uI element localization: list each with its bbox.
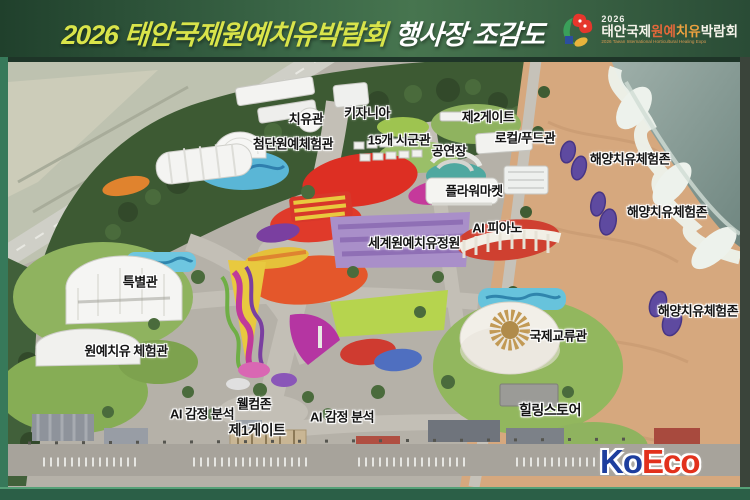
label-gate-1: 제1게이트 bbox=[229, 420, 286, 440]
label-performance-stage: 공연장 bbox=[432, 141, 466, 160]
label-local-food-hall: 로컬/푸드관 bbox=[495, 128, 555, 147]
label-healing-store: 힐링스토어 bbox=[519, 400, 581, 420]
label-horticulture-experience: 원예치유 체험관 bbox=[84, 341, 167, 360]
label-advanced-horticulture: 첨단원예체험관 bbox=[253, 134, 333, 153]
label-city-county-pavilions: 15개 시군관 bbox=[368, 130, 430, 149]
label-ai-piano: AI 피아노 bbox=[472, 218, 522, 237]
label-ai-emotion-left: AI 감정 분석 bbox=[170, 404, 234, 423]
page-title-expo-name: 2026 태안국제원예치유박람회 bbox=[61, 20, 388, 50]
label-flower-market: 플라워마켓 bbox=[445, 181, 502, 200]
logo-year: 2026 bbox=[601, 15, 738, 24]
frame-border-right bbox=[740, 57, 750, 500]
logo-name: 태안국제원예치유박람회 bbox=[601, 25, 738, 39]
header-banner: 2026 태안국제원예치유박람회행사장 조감도 2026 태안국제원예치유박람회… bbox=[0, 0, 750, 57]
page-title-suffix: 행사장 조감도 bbox=[394, 20, 546, 50]
label-welcome-zone: 웰컴존 bbox=[237, 394, 271, 413]
label-ai-emotion-right: AI 감정 분석 bbox=[310, 407, 374, 426]
logo-name-part1: 태안국제 bbox=[601, 24, 651, 39]
expo-site-map-poster: 2026 태안국제원예치유박람회행사장 조감도 2026 태안국제원예치유박람회… bbox=[0, 0, 750, 500]
expo-logo-text: 2026 태안국제원예치유박람회 2026 Taean Internationa… bbox=[601, 15, 738, 45]
logo-name-part4: 박람회 bbox=[701, 24, 738, 39]
label-world-healing-garden: 세계원예치유정원 bbox=[368, 233, 460, 252]
frame-border-bottom bbox=[0, 487, 750, 500]
header-divider bbox=[0, 57, 750, 62]
expo-flower-icon bbox=[559, 10, 595, 50]
label-gate-2: 제2게이트 bbox=[462, 107, 515, 126]
koeco-logo: KoEco bbox=[600, 443, 700, 481]
label-international-exchange: 국제교류관 bbox=[529, 326, 586, 345]
frame-border-left bbox=[0, 57, 8, 500]
logo-subtitle: 2026 Taean International Horticultural H… bbox=[601, 40, 738, 45]
page-title: 2026 태안국제원예치유박람회행사장 조감도 bbox=[61, 13, 546, 52]
label-marine-healing-zone-3: 해양치유체험존 bbox=[658, 301, 738, 320]
koeco-logo-eco: Eco bbox=[642, 443, 700, 480]
label-special-hall: 특별관 bbox=[123, 272, 157, 291]
label-healing-hall: 치유관 bbox=[289, 109, 323, 128]
logo-name-part2: 원예 bbox=[651, 24, 676, 39]
expo-logo: 2026 태안국제원예치유박람회 2026 Taean Internationa… bbox=[559, 8, 738, 52]
koeco-logo-ko: Ko bbox=[600, 443, 642, 480]
label-marine-healing-zone-1: 해양치유체험존 bbox=[590, 149, 670, 168]
label-marine-healing-zone-2: 해양치유체험존 bbox=[627, 202, 707, 221]
logo-name-part3: 치유 bbox=[676, 24, 701, 39]
label-kidzania: 키자니아 bbox=[344, 103, 390, 122]
